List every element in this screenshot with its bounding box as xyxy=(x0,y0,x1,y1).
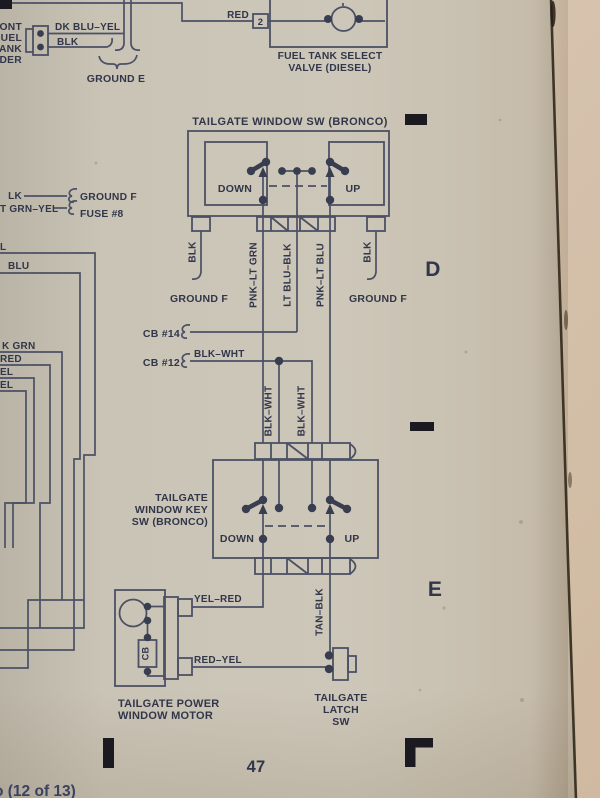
ground-f-left-label: GROUND F xyxy=(170,293,228,305)
motor-cb-label: CB xyxy=(141,647,151,661)
cb14-label: CB #14 xyxy=(143,328,180,340)
registration-mark-right-2 xyxy=(410,422,434,431)
wire-label-yel-red: YEL–RED xyxy=(194,594,242,605)
ground-f-right-label: GROUND F xyxy=(349,293,407,305)
registration-mark-top-left xyxy=(0,0,12,9)
ground-e-label: GROUND E xyxy=(87,73,146,85)
key-switch-down-label: DOWN xyxy=(220,533,254,545)
nested-wire-label-6: EL xyxy=(0,380,13,391)
grid-letter-d: D xyxy=(425,258,440,281)
fuse-8-label: FUSE #8 xyxy=(80,209,124,220)
wire-label-blk-wht-riser1: BLK–WHT xyxy=(264,386,275,437)
wire-label-blk-wht-cb12: BLK–WHT xyxy=(194,349,245,360)
page-number: 47 xyxy=(247,758,266,776)
wire-label-pnk-lt-grn: PNK–LT GRN xyxy=(249,242,260,308)
nested-wire-label-4: RED xyxy=(0,354,22,365)
sender-partial-line3: ANK xyxy=(0,44,22,55)
latch-switch-title-line3: SW xyxy=(332,716,349,728)
latch-switch-title-line2: LATCH xyxy=(323,704,359,716)
nested-wire-label-3: K GRN xyxy=(2,341,35,352)
registration-mark-bottom-left xyxy=(103,738,114,768)
pin-2-label: 2 xyxy=(258,17,264,28)
window-switch-up-label: UP xyxy=(345,183,360,195)
wire-label-dk-blu-yel: DK BLU–YEL xyxy=(55,22,120,33)
wire-label-blk-right: BLK xyxy=(363,241,374,263)
wire-label-blk-sender: BLK xyxy=(57,37,79,48)
motor-title-line2: WINDOW MOTOR xyxy=(118,710,213,722)
nested-wire-label-2: BLU xyxy=(8,261,29,272)
footer-partial-text: o (12 of 13) xyxy=(0,783,76,798)
registration-mark-right-1 xyxy=(405,114,427,125)
wire-label-tan-blk: TAN–BLK xyxy=(315,588,326,636)
fuel-valve-title-line2: VALVE (DIESEL) xyxy=(288,63,371,74)
grid-letter-e: E xyxy=(428,578,442,601)
wire-label-blk-wht-riser2: BLK–WHT xyxy=(297,386,308,437)
wire-label-blk-partial: LK xyxy=(8,191,22,202)
key-switch-title-line2: WINDOW KEY xyxy=(135,504,208,516)
wire-label-red: RED xyxy=(227,10,249,21)
wire-label-lt-blu-blk: LT BLU–BLK xyxy=(283,243,294,307)
wire-label-grn-yel: T GRN–YEL xyxy=(0,204,58,215)
sender-partial-line2: UEL xyxy=(1,33,22,44)
window-switch-down-label: DOWN xyxy=(218,183,252,195)
ground-f-left-branch-label: GROUND F xyxy=(80,192,137,203)
latch-switch-title-line1: TAILGATE xyxy=(315,692,368,704)
cb12-label: CB #12 xyxy=(143,357,180,369)
sender-partial-line1: ONT xyxy=(0,22,22,33)
scanned-wiring-diagram-page: ONT UEL ANK DER DK BLU–YEL BLK GROUND E … xyxy=(0,0,600,798)
motor-title-line1: TAILGATE POWER xyxy=(118,698,219,710)
wire-label-red-yel: RED–YEL xyxy=(194,655,242,666)
wire-label-pnk-lt-blu: PNK–LT BLU xyxy=(316,243,327,307)
key-switch-title-line1: TAILGATE xyxy=(155,492,208,504)
nested-wire-label-1: L xyxy=(0,242,6,253)
key-switch-title-line3: SW (BRONCO) xyxy=(132,516,208,528)
window-switch-title: TAILGATE WINDOW SW (BRONCO) xyxy=(192,116,388,128)
sender-partial-line4: DER xyxy=(0,55,22,66)
key-switch-up-label: UP xyxy=(344,533,359,545)
fuel-valve-title-line1: FUEL TANK SELECT xyxy=(278,51,383,62)
nested-wire-label-5: EL xyxy=(0,367,13,378)
wire-label-blk-left: BLK xyxy=(188,241,199,263)
wiring-diagram-canvas: ONT UEL ANK DER DK BLU–YEL BLK GROUND E … xyxy=(0,0,600,798)
